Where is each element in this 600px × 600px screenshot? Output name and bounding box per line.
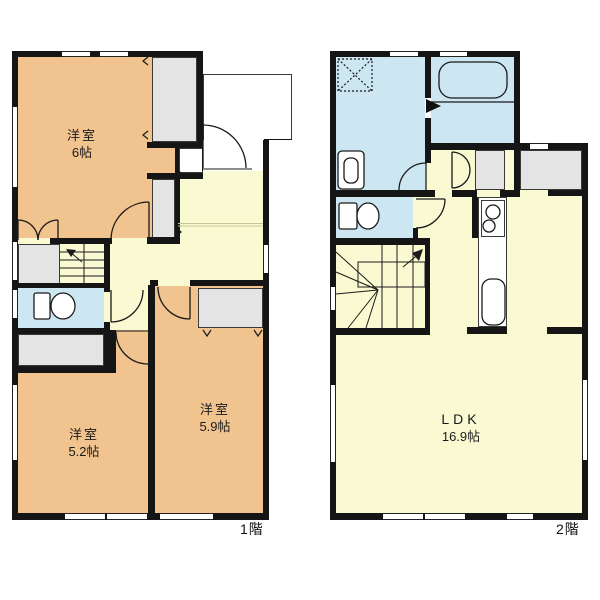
room-size: 16.9帖 (411, 428, 511, 445)
window (12, 385, 18, 460)
wall (452, 190, 477, 197)
closet (152, 179, 175, 238)
window (65, 513, 105, 520)
wall (147, 237, 180, 244)
wall (548, 190, 588, 196)
wall (148, 285, 155, 513)
window (12, 242, 18, 280)
room-label-yoshitsu-59: 洋室 5.9帖 (173, 401, 257, 435)
floor-label-2f: 2階 (556, 519, 580, 539)
floor-label-1f: 1階 (240, 519, 264, 539)
wall (104, 244, 110, 292)
wall (264, 139, 292, 140)
floorplan-canvas: 洋室 6帖 洋室 5.2帖 洋室 5.9帖 LDK 16.9帖 1階 2階 (0, 0, 600, 600)
wall (330, 190, 435, 197)
room-name: 洋室 (40, 127, 124, 144)
wall (12, 283, 110, 288)
room-name: 洋室 (173, 401, 257, 418)
wall (12, 328, 110, 334)
room-size: 5.9帖 (173, 418, 257, 435)
wall (202, 140, 203, 171)
window (160, 513, 213, 520)
toilet-room-2f (336, 197, 413, 238)
window (383, 513, 423, 520)
wall (413, 228, 418, 238)
wall (467, 327, 507, 334)
room-yoshitsu-52 (115, 330, 148, 373)
washroom (336, 57, 425, 190)
wall (514, 51, 520, 196)
wall (547, 327, 588, 334)
room-name: 洋室 (42, 426, 126, 443)
wall (425, 57, 431, 98)
wall (472, 197, 478, 238)
window (100, 51, 128, 57)
entry-porch (203, 74, 292, 140)
under-stair-storage (18, 244, 60, 284)
wall (425, 143, 520, 150)
wall (12, 366, 116, 373)
wall (197, 51, 203, 142)
storage-box (179, 148, 203, 173)
wall (190, 280, 263, 286)
room-label-yoshitsu-6: 洋室 6帖 (40, 127, 124, 161)
window (425, 513, 465, 520)
room-name: LDK (411, 410, 511, 428)
wall (263, 140, 269, 520)
window (12, 290, 18, 318)
closet (198, 288, 263, 328)
window (12, 107, 18, 187)
toilet-room-1f (18, 288, 104, 328)
wall (500, 190, 520, 197)
closet (475, 150, 505, 190)
window (330, 287, 336, 310)
room-yoshitsu-6 (147, 148, 175, 173)
room-size: 6帖 (40, 144, 124, 161)
wall (50, 238, 112, 244)
wall (330, 238, 430, 245)
wall (425, 245, 430, 328)
storage (18, 334, 104, 366)
window (582, 380, 588, 460)
closet (152, 57, 197, 142)
window (507, 513, 533, 520)
window (62, 51, 90, 57)
window (263, 245, 269, 273)
wall (425, 118, 431, 163)
bathroom (431, 57, 514, 143)
wall (175, 148, 179, 173)
entry-lower (203, 140, 263, 171)
window (530, 143, 548, 150)
room-label-ldk: LDK 16.9帖 (411, 410, 511, 446)
room-label-yoshitsu-52: 洋室 5.2帖 (42, 426, 126, 460)
window (330, 385, 336, 462)
window (440, 51, 467, 57)
wall (330, 328, 430, 335)
stove-box (481, 200, 505, 237)
room-size: 5.2帖 (42, 443, 126, 460)
wall (175, 179, 180, 238)
closet (520, 150, 582, 190)
wall (150, 280, 158, 286)
window (107, 513, 147, 520)
wall (110, 330, 116, 373)
window (390, 51, 418, 57)
